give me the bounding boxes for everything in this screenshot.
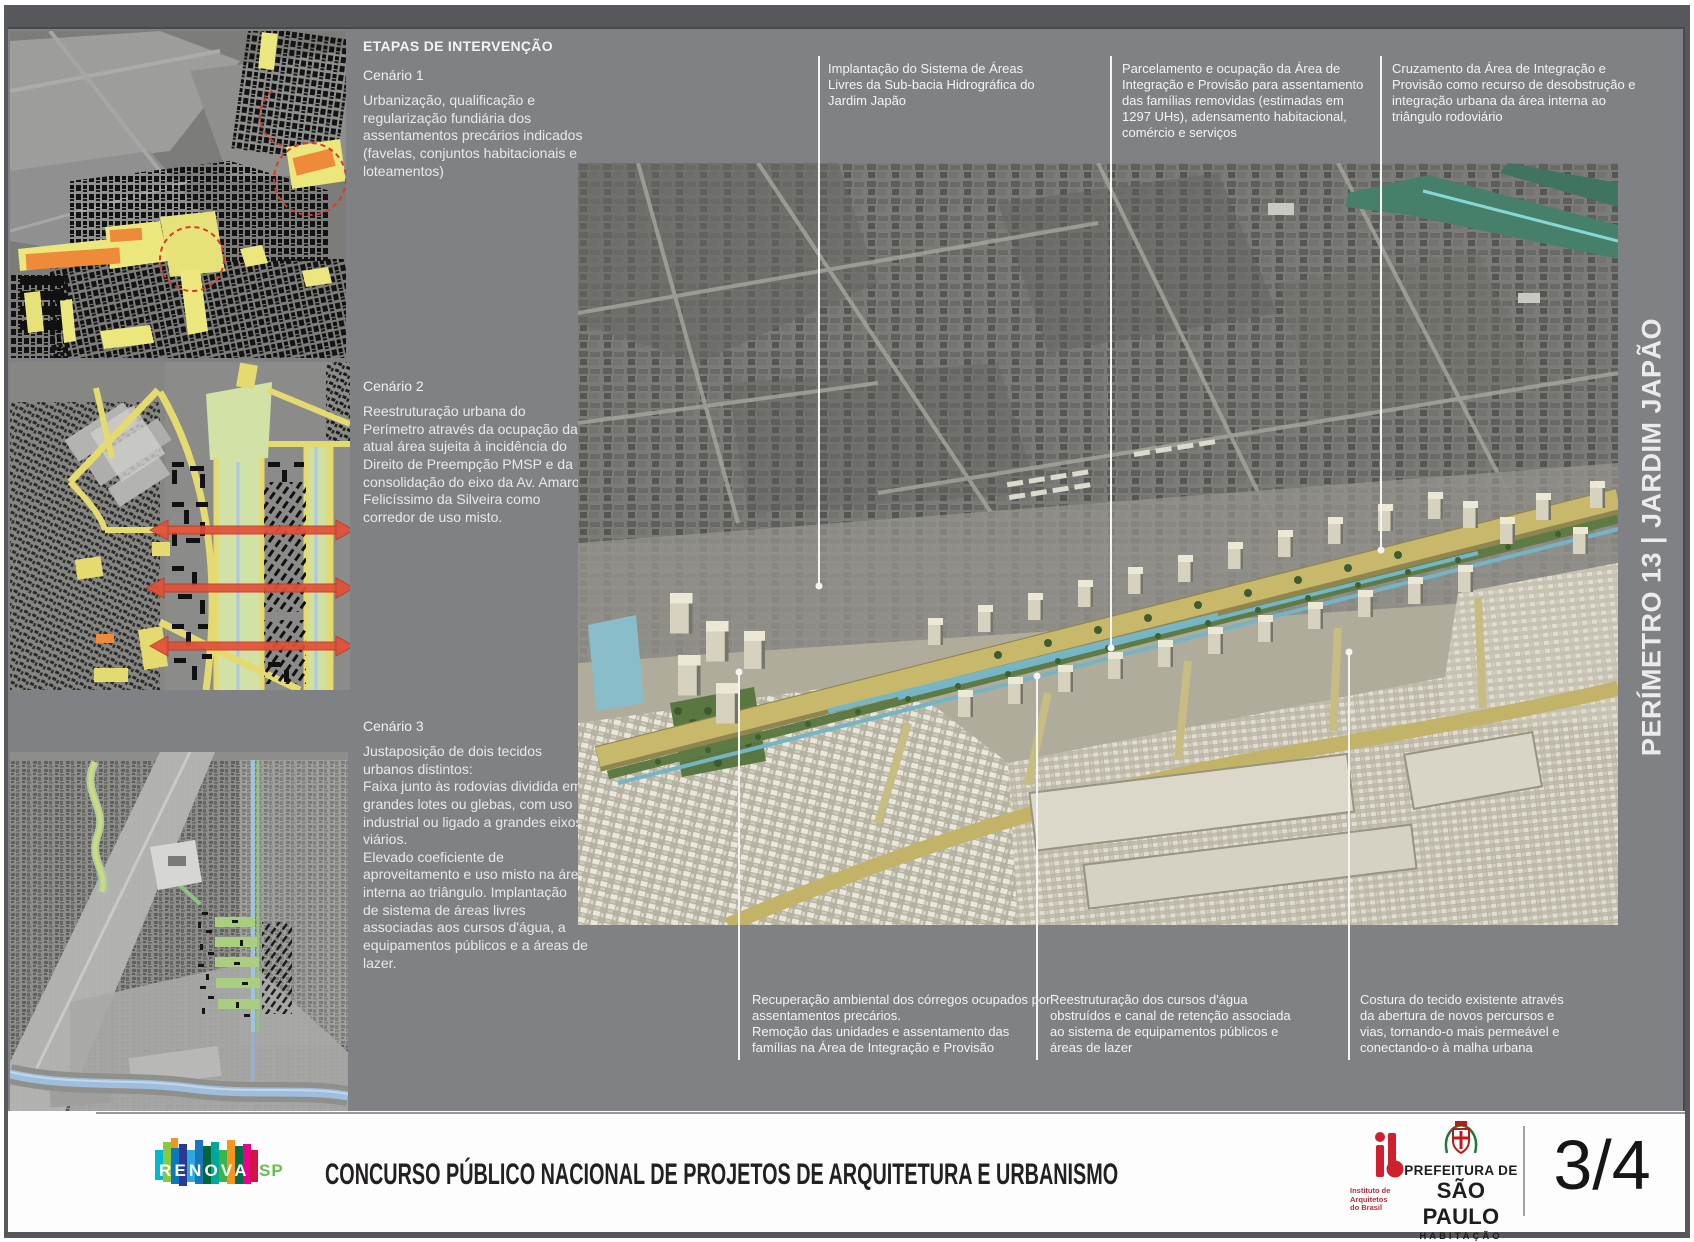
leader-line-top-2 (1110, 56, 1112, 648)
leader-dot-top-1 (816, 583, 823, 590)
annotation-bottom-3: Costura do tecido existente através da a… (1360, 992, 1590, 1056)
prefeitura-line3: HABITAÇÃO (1403, 1231, 1519, 1242)
map-cenario-2-image (10, 362, 350, 690)
iab-text-line3: do Brasil (1350, 1204, 1390, 1213)
leader-line-top-1 (818, 56, 820, 586)
cenario-2-title: Cenário 2 (363, 378, 601, 394)
page-number: 3/4 (1532, 1125, 1672, 1205)
leader-dot-bottom-2 (1034, 673, 1041, 680)
leader-dot-bottom-3 (1346, 649, 1353, 656)
cenario-2-body: Reestruturação urbana do Perímetro atrav… (363, 403, 601, 526)
annotation-top-1: Implantação do Sistema de Áreas Livres d… (828, 61, 1058, 109)
prefeitura-logo: PREFEITURA DE SÃO PAULO HABITAÇÃO (1403, 1119, 1519, 1225)
map-cenario-3-image (10, 752, 348, 1111)
leader-line-top-3 (1380, 56, 1382, 550)
footer-divider-rule (96, 1112, 1685, 1114)
leader-line-bottom-1 (738, 672, 740, 1060)
aerial-rendering (578, 163, 1618, 925)
sao-paulo-crest-icon (1441, 1119, 1481, 1161)
cenario-3-title: Cenário 3 (363, 718, 601, 734)
footer-bar: RENOVA SP CONCURSO PÚBLICO NACIONAL DE P… (8, 1111, 1685, 1232)
iab-glyph-icon (1374, 1131, 1404, 1181)
map-cenario-1-image (10, 31, 346, 358)
map-cenario-1 (10, 31, 346, 358)
renova-wordmark: RENOVA (159, 1161, 250, 1180)
map-cenario-3 (10, 752, 348, 1111)
annotation-top-2: Parcelamento e ocupação da Área de Integ… (1122, 61, 1372, 142)
footer-vertical-divider (1523, 1126, 1525, 1216)
cenario-3-body: Justaposição de dois tecidos urbanos dis… (363, 743, 601, 972)
leader-dot-top-2 (1108, 645, 1115, 652)
cenario-3-block: Cenário 3 Justaposição de dois tecidos u… (363, 718, 601, 972)
renova-sp-logo: RENOVA SP (153, 1136, 283, 1198)
cenario-1-title: Cenário 1 (363, 67, 601, 83)
perimeter-side-title: PERÍMETRO 13 | JARDIM JAPÃO (1637, 318, 1668, 756)
leader-dot-top-3 (1378, 547, 1385, 554)
etapas-heading: ETAPAS DE INTERVENÇÃO (363, 38, 601, 54)
leader-line-bottom-3 (1348, 652, 1350, 1060)
annotation-bottom-2: Reestruturação dos cursos d'água obstruí… (1050, 992, 1310, 1056)
annotation-bottom-1: Recuperação ambiental dos córregos ocupa… (752, 992, 1052, 1056)
cenario-2-block: Cenário 2 Reestruturação urbana do Perím… (363, 378, 601, 526)
prefeitura-line1: PREFEITURA DE (1403, 1163, 1519, 1178)
intervention-text-column: ETAPAS DE INTERVENÇÃO (363, 38, 601, 54)
leader-dot-bottom-1 (736, 669, 743, 676)
annotation-top-3: Cruzamento da Área de Integração e Provi… (1392, 61, 1642, 125)
competition-title: CONCURSO PÚBLICO NACIONAL DE PROJETOS DE… (325, 1158, 1118, 1192)
aerial-rendering-image (578, 163, 1618, 925)
map-cenario-2 (10, 362, 350, 690)
renova-sp-suffix: SP (259, 1161, 283, 1180)
cenario-1-block: Cenário 1 Urbanização, qualificação e re… (363, 67, 601, 180)
prefeitura-line2: SÃO PAULO (1403, 1178, 1519, 1230)
cenario-1-body: Urbanização, qualificação e regularizaçã… (363, 92, 601, 180)
